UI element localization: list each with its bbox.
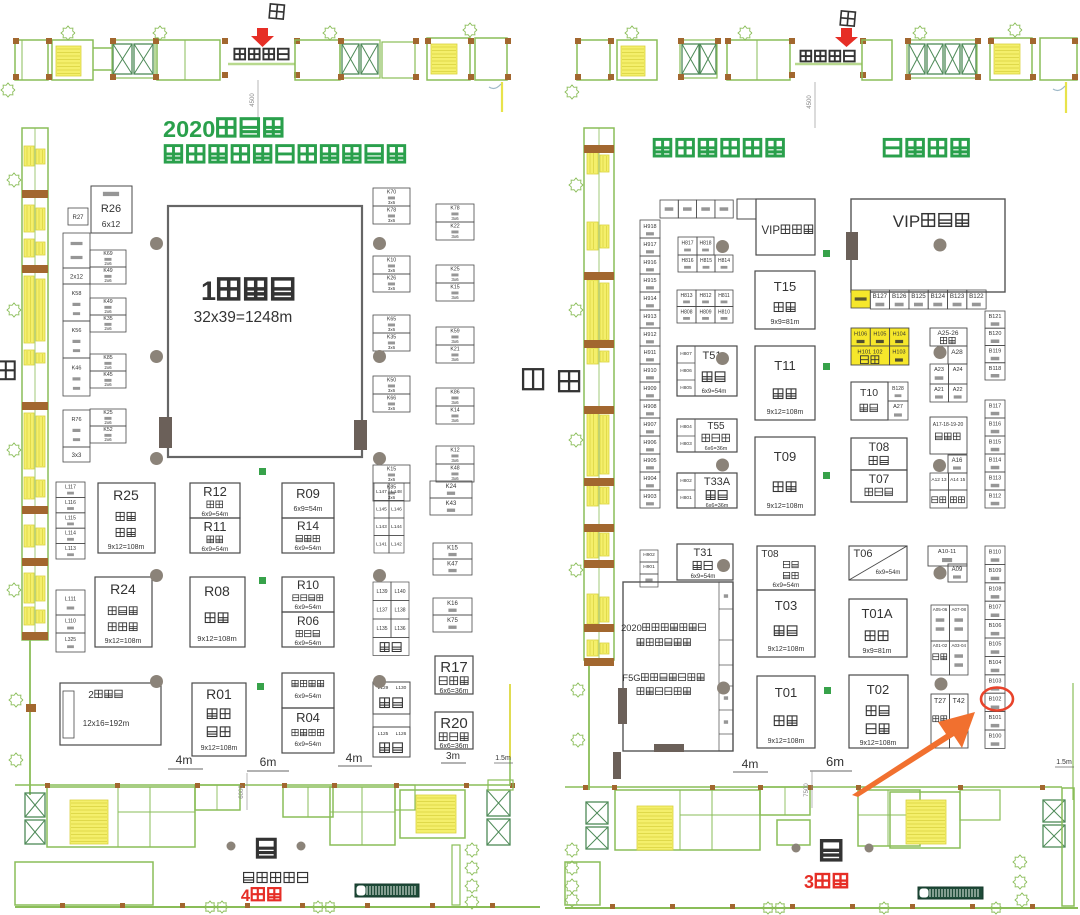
svg-text:L136: L136 xyxy=(394,626,405,632)
svg-text:A01-02: A01-02 xyxy=(933,643,948,648)
svg-text:H912: H912 xyxy=(643,332,656,338)
svg-text:R06: R06 xyxy=(297,614,319,628)
svg-text:R27: R27 xyxy=(72,215,84,221)
svg-text:H903: H903 xyxy=(643,494,656,500)
svg-text:K15: K15 xyxy=(450,284,459,290)
svg-text:6x6=36m: 6x6=36m xyxy=(440,688,469,695)
svg-text:K25: K25 xyxy=(450,266,459,272)
svg-text:B100: B100 xyxy=(989,734,1002,740)
svg-text:L142: L142 xyxy=(391,542,402,548)
svg-text:4m: 4m xyxy=(346,751,363,765)
svg-text:T10: T10 xyxy=(860,387,878,399)
svg-text:B112: B112 xyxy=(989,494,1001,500)
svg-text:9x9=81m: 9x9=81m xyxy=(863,648,892,655)
svg-text:T08: T08 xyxy=(869,440,890,454)
svg-text:K25: K25 xyxy=(103,410,112,416)
svg-text:R76: R76 xyxy=(71,417,81,423)
svg-text:4m: 4m xyxy=(176,753,193,767)
svg-text:L143: L143 xyxy=(376,524,387,530)
svg-text:H104: H104 xyxy=(893,332,906,338)
svg-text:R08: R08 xyxy=(204,583,230,599)
svg-text:9x12=108m: 9x12=108m xyxy=(105,638,142,645)
svg-text:R09: R09 xyxy=(296,486,320,501)
svg-text:H917: H917 xyxy=(643,242,656,248)
svg-text:3x6: 3x6 xyxy=(451,357,459,362)
svg-text:A09: A09 xyxy=(952,567,963,573)
svg-text:K26: K26 xyxy=(387,275,396,281)
svg-text:T01A: T01A xyxy=(861,606,892,621)
svg-text:K86: K86 xyxy=(450,389,459,395)
svg-text:B110: B110 xyxy=(989,550,1001,556)
svg-text:H901: H901 xyxy=(643,564,655,570)
svg-text:3x6: 3x6 xyxy=(388,286,396,291)
svg-text:3x6: 3x6 xyxy=(451,476,459,481)
svg-text:K16: K16 xyxy=(447,601,458,607)
svg-text:B105: B105 xyxy=(989,642,1002,648)
svg-text:3x6: 3x6 xyxy=(451,418,459,423)
svg-text:R25: R25 xyxy=(113,487,139,503)
svg-text:B114: B114 xyxy=(989,458,1001,464)
svg-text:3x6: 3x6 xyxy=(451,216,459,221)
svg-text:H904: H904 xyxy=(643,476,656,482)
svg-text:K15: K15 xyxy=(447,546,458,552)
svg-text:4500: 4500 xyxy=(807,95,813,109)
svg-text:K35: K35 xyxy=(387,334,396,340)
svg-text:6x9=54m: 6x9=54m xyxy=(295,640,322,647)
svg-text:B106: B106 xyxy=(989,623,1002,629)
svg-text:2x6: 2x6 xyxy=(104,437,112,442)
svg-text:K49: K49 xyxy=(103,268,112,274)
svg-text:B118: B118 xyxy=(989,366,1001,372)
svg-text:B119: B119 xyxy=(989,349,1001,355)
svg-text:B123: B123 xyxy=(950,293,965,300)
svg-text:L116: L116 xyxy=(65,500,76,506)
svg-text:T01: T01 xyxy=(775,685,797,700)
svg-text:3x6: 3x6 xyxy=(388,345,396,350)
svg-text:9x12=108m: 9x12=108m xyxy=(860,740,897,747)
svg-text:3x6: 3x6 xyxy=(388,477,396,482)
svg-text:K78: K78 xyxy=(450,205,459,211)
svg-text:2x6: 2x6 xyxy=(104,326,112,331)
svg-text:K12: K12 xyxy=(450,447,459,453)
svg-text:L138: L138 xyxy=(394,608,405,614)
svg-text:H808: H808 xyxy=(681,309,693,315)
svg-text:3x6: 3x6 xyxy=(451,234,459,239)
svg-text:K43: K43 xyxy=(446,501,457,507)
svg-text:6m: 6m xyxy=(826,754,844,769)
svg-text:K70: K70 xyxy=(387,189,396,195)
svg-text:K15: K15 xyxy=(387,466,396,472)
svg-text:9x12=108m: 9x12=108m xyxy=(767,409,804,416)
svg-text:H103: H103 xyxy=(892,350,905,356)
svg-text:H802: H802 xyxy=(680,478,692,484)
svg-text:1.5m: 1.5m xyxy=(1056,759,1072,766)
svg-text:32x39=1248m: 32x39=1248m xyxy=(194,309,293,326)
svg-text:A25-26: A25-26 xyxy=(938,330,959,337)
svg-text:H813: H813 xyxy=(681,293,693,299)
svg-text:A22: A22 xyxy=(953,387,963,393)
svg-text:H801: H801 xyxy=(680,495,692,501)
svg-text:T02: T02 xyxy=(867,682,889,697)
svg-text:K48: K48 xyxy=(450,465,459,471)
svg-text:H913: H913 xyxy=(643,314,656,320)
svg-text:L135: L135 xyxy=(376,626,387,632)
svg-text:T11: T11 xyxy=(774,358,795,373)
svg-text:3x6: 3x6 xyxy=(451,400,459,405)
svg-text:L140: L140 xyxy=(394,589,405,595)
svg-text:L141: L141 xyxy=(376,542,387,548)
svg-text:R04: R04 xyxy=(296,710,320,725)
svg-text:K69: K69 xyxy=(103,251,112,257)
svg-text:9x9=81m: 9x9=81m xyxy=(771,319,800,326)
svg-text:L126: L126 xyxy=(396,731,407,737)
svg-text:K24: K24 xyxy=(446,484,457,490)
svg-text:H911: H911 xyxy=(644,350,657,356)
svg-text:L115: L115 xyxy=(65,515,76,521)
svg-text:9x12=108m: 9x12=108m xyxy=(197,634,236,643)
svg-text:K49: K49 xyxy=(103,299,112,305)
svg-text:B127: B127 xyxy=(873,293,888,300)
svg-text:4: 4 xyxy=(241,887,251,905)
svg-text:6x9=54m: 6x9=54m xyxy=(295,693,322,700)
svg-text:3x6: 3x6 xyxy=(451,277,459,282)
svg-text:6x6=36m: 6x6=36m xyxy=(440,743,469,750)
svg-text:K21: K21 xyxy=(450,346,459,352)
svg-text:B128: B128 xyxy=(892,386,904,392)
svg-text:K46: K46 xyxy=(72,365,82,371)
svg-text:9x12=108m: 9x12=108m xyxy=(768,738,805,745)
svg-text:H817: H817 xyxy=(682,241,694,247)
svg-text:T42: T42 xyxy=(953,698,965,705)
svg-text:A05-06: A05-06 xyxy=(933,607,948,612)
svg-text:3m: 3m xyxy=(446,751,460,762)
svg-text:B107: B107 xyxy=(989,605,1002,611)
svg-text:L148: L148 xyxy=(391,489,402,495)
svg-text:R20: R20 xyxy=(440,715,468,732)
svg-text:F5G: F5G xyxy=(622,673,640,683)
svg-text:2x6: 2x6 xyxy=(104,365,112,370)
svg-text:A16: A16 xyxy=(952,458,963,464)
svg-text:H908: H908 xyxy=(643,404,656,410)
svg-text:H902: H902 xyxy=(643,552,655,558)
svg-text:9x12=108m: 9x12=108m xyxy=(767,503,804,510)
svg-text:H805: H805 xyxy=(680,385,692,391)
svg-text:H914: H914 xyxy=(643,296,656,302)
svg-text:B116: B116 xyxy=(989,422,1001,428)
svg-text:2x6: 2x6 xyxy=(104,261,112,266)
svg-text:H910: H910 xyxy=(643,368,656,374)
svg-text:6x9=54m: 6x9=54m xyxy=(202,546,229,553)
svg-text:T08: T08 xyxy=(761,549,779,560)
svg-text:A03-04: A03-04 xyxy=(951,643,966,648)
svg-text:3x6: 3x6 xyxy=(388,218,396,223)
svg-text:R11: R11 xyxy=(204,519,227,534)
svg-text:6x6=36m: 6x6=36m xyxy=(705,446,728,452)
svg-text:K50: K50 xyxy=(387,377,396,383)
svg-text:B109: B109 xyxy=(989,568,1002,574)
svg-text:6x6=36m: 6x6=36m xyxy=(706,503,729,509)
svg-text:6000: 6000 xyxy=(239,785,245,799)
svg-text:4m: 4m xyxy=(742,757,759,771)
svg-text:T07: T07 xyxy=(869,472,890,486)
svg-text:A23: A23 xyxy=(934,367,944,373)
svg-text:A10-11: A10-11 xyxy=(938,549,956,555)
svg-text:T31: T31 xyxy=(694,547,713,559)
svg-text:H810: H810 xyxy=(718,309,730,315)
svg-text:2: 2 xyxy=(88,690,94,701)
svg-text:VIP: VIP xyxy=(762,225,781,237)
svg-text:B122: B122 xyxy=(969,293,984,300)
svg-text:9x12=108m: 9x12=108m xyxy=(768,646,805,653)
svg-text:H106: H106 xyxy=(854,332,867,338)
svg-text:B103: B103 xyxy=(989,678,1002,684)
svg-text:B117: B117 xyxy=(989,404,1001,410)
svg-text:6x9=54m: 6x9=54m xyxy=(294,506,323,513)
svg-text:A24: A24 xyxy=(953,367,963,373)
svg-text:L113: L113 xyxy=(65,546,76,552)
svg-text:H818: H818 xyxy=(700,241,712,247)
svg-text:H811: H811 xyxy=(718,293,730,299)
svg-text:T03: T03 xyxy=(775,598,797,613)
svg-text:3x6: 3x6 xyxy=(388,406,396,411)
svg-text:H918: H918 xyxy=(643,224,656,230)
svg-text:A27: A27 xyxy=(893,404,903,410)
svg-text:B102: B102 xyxy=(989,697,1002,703)
svg-text:R14: R14 xyxy=(297,519,319,533)
svg-text:K85: K85 xyxy=(103,355,112,361)
svg-text:L125: L125 xyxy=(378,731,389,737)
svg-text:A12 13: A12 13 xyxy=(931,477,947,483)
svg-text:B121: B121 xyxy=(989,314,1002,320)
svg-text:H915: H915 xyxy=(643,278,656,284)
svg-text:T55: T55 xyxy=(707,421,725,432)
svg-text:L111: L111 xyxy=(65,597,76,603)
svg-text:R17: R17 xyxy=(440,659,468,676)
svg-text:A28: A28 xyxy=(951,349,963,356)
svg-text:B126: B126 xyxy=(892,293,907,300)
svg-text:H804: H804 xyxy=(680,424,692,430)
svg-text:6m: 6m xyxy=(260,755,277,769)
svg-text:K45: K45 xyxy=(103,372,112,378)
svg-text:3x6: 3x6 xyxy=(451,458,459,463)
svg-text:T27: T27 xyxy=(934,698,946,705)
svg-text:A17-18-19-20: A17-18-19-20 xyxy=(933,422,964,428)
svg-text:K78: K78 xyxy=(387,207,396,213)
svg-text:1.5m: 1.5m xyxy=(495,755,511,762)
svg-text:R24: R24 xyxy=(110,581,136,597)
svg-text:6x9=54m: 6x9=54m xyxy=(295,604,322,611)
svg-text:12x16=192m: 12x16=192m xyxy=(83,719,130,728)
svg-text:2x6: 2x6 xyxy=(104,278,112,283)
svg-text:3x6: 3x6 xyxy=(451,339,459,344)
svg-text:2020: 2020 xyxy=(621,623,642,633)
svg-text:K10: K10 xyxy=(387,257,396,263)
svg-text:9x12=108m: 9x12=108m xyxy=(201,745,238,752)
svg-text:6x9=54m: 6x9=54m xyxy=(702,389,727,395)
svg-text:R26: R26 xyxy=(101,203,121,215)
svg-text:K58: K58 xyxy=(72,291,82,297)
svg-text:VIP: VIP xyxy=(893,212,920,231)
svg-text:3x6: 3x6 xyxy=(388,327,396,332)
svg-text:2x6: 2x6 xyxy=(104,420,112,425)
svg-text:K22: K22 xyxy=(450,223,459,229)
svg-text:1: 1 xyxy=(201,276,216,306)
svg-text:L145: L145 xyxy=(376,507,387,513)
svg-text:L110: L110 xyxy=(65,619,76,625)
svg-text:2x12: 2x12 xyxy=(70,274,84,280)
svg-text:H809: H809 xyxy=(700,309,712,315)
svg-text:H905: H905 xyxy=(643,458,656,464)
svg-text:B125: B125 xyxy=(911,293,926,300)
svg-text:6x12: 6x12 xyxy=(102,219,121,229)
svg-text:2x6: 2x6 xyxy=(104,309,112,314)
svg-text:K14: K14 xyxy=(450,407,459,413)
svg-text:B113: B113 xyxy=(989,476,1001,482)
svg-text:T15: T15 xyxy=(774,279,796,294)
svg-text:6x9=54m: 6x9=54m xyxy=(295,741,322,748)
svg-text:L147: L147 xyxy=(376,489,387,495)
svg-text:L146: L146 xyxy=(391,507,402,513)
svg-text:L144: L144 xyxy=(391,524,402,530)
svg-text:H815: H815 xyxy=(700,258,712,264)
svg-text:2x6: 2x6 xyxy=(104,382,112,387)
svg-text:L114: L114 xyxy=(65,531,76,537)
svg-text:H907: H907 xyxy=(643,422,656,428)
svg-text:H812: H812 xyxy=(700,293,712,299)
svg-text:B101: B101 xyxy=(989,715,1002,721)
svg-text:6x9=54m: 6x9=54m xyxy=(295,545,322,552)
svg-text:A14 15: A14 15 xyxy=(950,477,966,483)
svg-text:K47: K47 xyxy=(447,562,458,568)
svg-text:K65: K65 xyxy=(387,316,396,322)
svg-text:6x9=54m: 6x9=54m xyxy=(876,570,901,576)
svg-text:K66: K66 xyxy=(387,395,396,401)
svg-text:K35: K35 xyxy=(103,316,112,322)
svg-text:B108: B108 xyxy=(989,586,1002,592)
svg-text:4500: 4500 xyxy=(250,93,256,107)
svg-text:A21: A21 xyxy=(934,387,944,393)
svg-text:H806: H806 xyxy=(680,368,692,374)
svg-text:3x3: 3x3 xyxy=(72,453,82,459)
svg-text:A07-08: A07-08 xyxy=(951,607,966,612)
svg-text:6x9=54m: 6x9=54m xyxy=(202,511,229,518)
svg-text:L325: L325 xyxy=(65,637,76,643)
svg-text:2020: 2020 xyxy=(163,116,215,142)
svg-text:K52: K52 xyxy=(103,427,112,433)
svg-text:H803: H803 xyxy=(680,441,692,447)
svg-text:T33A: T33A xyxy=(704,476,731,488)
svg-text:B124: B124 xyxy=(931,293,946,300)
svg-text:3x6: 3x6 xyxy=(388,388,396,393)
svg-text:3x6: 3x6 xyxy=(388,268,396,273)
svg-text:9x12=108m: 9x12=108m xyxy=(108,544,145,551)
svg-text:H101 102: H101 102 xyxy=(857,350,882,356)
svg-text:3x6: 3x6 xyxy=(388,200,396,205)
svg-text:B120: B120 xyxy=(989,331,1002,337)
svg-text:R12: R12 xyxy=(203,484,227,499)
svg-text:T09: T09 xyxy=(774,449,796,464)
svg-text:K59: K59 xyxy=(450,328,459,334)
svg-text:7500: 7500 xyxy=(804,783,810,797)
svg-text:R10: R10 xyxy=(297,578,319,592)
svg-text:H906: H906 xyxy=(643,440,656,446)
svg-text:L117: L117 xyxy=(65,485,76,491)
svg-text:H816: H816 xyxy=(682,258,694,264)
svg-text:H807: H807 xyxy=(680,351,692,357)
svg-text:B104: B104 xyxy=(989,660,1002,666)
svg-text:T06: T06 xyxy=(854,548,873,560)
svg-text:6x9=54m: 6x9=54m xyxy=(773,582,800,589)
svg-text:6x9=54m: 6x9=54m xyxy=(691,574,716,580)
svg-text:H814: H814 xyxy=(718,258,730,264)
svg-text:R01: R01 xyxy=(206,686,232,702)
svg-text:3x6: 3x6 xyxy=(451,295,459,300)
svg-text:3: 3 xyxy=(804,872,814,892)
svg-text:H916: H916 xyxy=(643,260,656,266)
svg-text:B115: B115 xyxy=(989,440,1001,446)
svg-text:K75: K75 xyxy=(447,618,458,624)
svg-text:L137: L137 xyxy=(376,608,387,614)
svg-text:L139: L139 xyxy=(376,589,387,595)
svg-text:H909: H909 xyxy=(643,386,656,392)
svg-text:K56: K56 xyxy=(72,328,82,334)
svg-text:L130: L130 xyxy=(396,685,407,691)
svg-text:H105: H105 xyxy=(873,332,886,338)
